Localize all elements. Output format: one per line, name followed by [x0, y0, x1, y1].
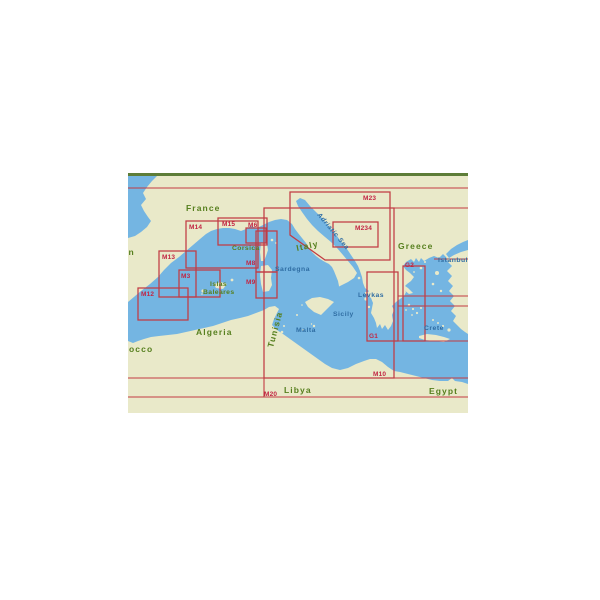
chart-code-M15: M15	[222, 221, 235, 228]
chart-code-M6: M6	[248, 222, 258, 229]
sea-label-crete: Crete	[424, 325, 444, 332]
chart-code-M13: M13	[162, 254, 175, 261]
chart-code-M20: M20	[264, 391, 277, 398]
scanned-chart-index-page: M14M15M6M8M9M13M3M12M10G1G2M234M23M20Fra…	[0, 0, 600, 600]
chart-code-G1: G1	[369, 333, 378, 340]
country-label-corsica: Corsica	[232, 245, 260, 252]
chart-code-M8: M8	[246, 260, 256, 267]
chart-code-M14: M14	[189, 224, 202, 231]
chart-code-M234: M234	[355, 225, 372, 232]
chart-code-M23: M23	[363, 195, 376, 202]
country-label-france: France	[186, 203, 220, 213]
country-label-n: n	[129, 247, 135, 257]
chart-code-M10: M10	[373, 371, 386, 378]
map-canvas: M14M15M6M8M9M13M3M12M10G1G2M234M23M20Fra…	[128, 173, 468, 413]
chart-code-M12: M12	[141, 291, 154, 298]
mediterranean-chart-index-map: M14M15M6M8M9M13M3M12M10G1G2M234M23M20Fra…	[128, 173, 468, 413]
chart-code-G2: G2	[405, 262, 414, 269]
chart-code-M9: M9	[246, 279, 256, 286]
country-label-egypt: Egypt	[429, 386, 458, 396]
country-label-baleares: Baleares	[203, 289, 235, 296]
sea-label-malta: Malta	[296, 327, 316, 334]
country-label-greece: Greece	[398, 241, 433, 251]
chart-code-M3: M3	[181, 273, 191, 280]
sea-label-levkas: Levkas	[358, 292, 384, 299]
country-label-occo: occo	[129, 344, 153, 354]
sea-label-sardegna: Sardegna	[275, 266, 310, 273]
sea-label-sicily: Sicily	[333, 311, 354, 318]
sea-label-istanbul: Istanbul	[438, 257, 468, 264]
country-label-libya: Libya	[284, 385, 312, 395]
country-label-islas: Islas	[210, 281, 227, 288]
map-top-border	[128, 173, 468, 176]
country-label-algeria: Algeria	[196, 327, 233, 337]
